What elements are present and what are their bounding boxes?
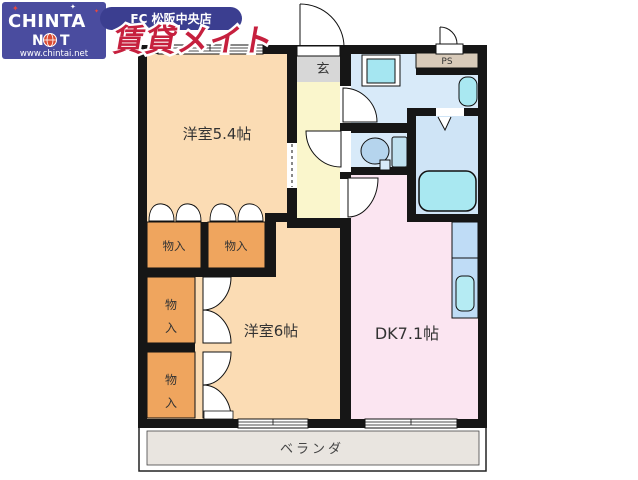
- logo-text-t: T: [60, 33, 70, 49]
- veranda-label: ベランダ: [280, 442, 344, 457]
- pipe-shaft-label: PS: [441, 57, 452, 67]
- logo-text-n: N: [32, 33, 44, 49]
- meter-box-door: [436, 27, 463, 54]
- door-gap: [436, 108, 464, 116]
- toilet-tank: [392, 137, 407, 167]
- room-west-54-label: 洋室5.4帖: [183, 125, 252, 143]
- veranda: ベランダ: [139, 426, 486, 471]
- wall: [265, 213, 276, 270]
- star-icon: ✦: [12, 4, 19, 13]
- star-icon: ✦: [70, 3, 76, 11]
- window-bottom-dk: [365, 419, 457, 428]
- bathtub: [419, 171, 476, 211]
- room-dk-label: DK7.1帖: [375, 324, 439, 343]
- door-swing-arc: [300, 4, 344, 47]
- wall: [201, 222, 208, 268]
- window-bottom-west6: [238, 419, 308, 428]
- floor-plan-canvas: ベランダ: [0, 0, 638, 480]
- globe-icon: [44, 34, 57, 47]
- wall: [138, 45, 147, 428]
- wall: [340, 54, 351, 86]
- floor-plan-page: ベランダ: [0, 0, 638, 480]
- logo-url: www.chintai.net: [20, 49, 89, 59]
- storage-c-char-top: 物: [165, 298, 177, 312]
- wall: [340, 218, 351, 428]
- entrance-door-sill: [297, 46, 340, 56]
- room54-opening: [287, 143, 297, 188]
- wall: [407, 214, 478, 222]
- kitchen-sink: [456, 276, 474, 311]
- door-swing-arc: [440, 27, 457, 44]
- storage-a-label: 物入: [163, 239, 186, 253]
- room-west-6-label: 洋室6帖: [244, 322, 299, 340]
- wall: [416, 68, 478, 75]
- kitchen-counter: [452, 222, 478, 318]
- brand-name-text: 賃貸メイト: [110, 23, 277, 59]
- storage-c-char-bottom: 入: [165, 321, 177, 335]
- wall: [478, 45, 487, 428]
- wall: [287, 54, 297, 222]
- wall: [407, 108, 416, 222]
- star-icon: ✦: [94, 8, 99, 15]
- brand-name: 賃貸メイト: [110, 23, 277, 59]
- toilet-base: [380, 160, 390, 170]
- storage-d-char-top: 物: [165, 373, 177, 387]
- storage-b-label: 物入: [225, 239, 248, 253]
- entrance-label: 玄: [316, 62, 329, 77]
- wall: [340, 167, 416, 175]
- wall: [147, 343, 195, 352]
- door-gap: [340, 131, 351, 172]
- vanity-basin: [459, 77, 477, 106]
- entrance-door: [297, 4, 344, 56]
- washing-machine: [367, 59, 395, 83]
- meter-door-sill: [436, 44, 463, 54]
- wall: [147, 268, 276, 277]
- brand-header: CHINTA ✦ ✦ ✦ N T www.chintai.net FC 松阪中央…: [2, 2, 277, 59]
- door-sill: [204, 411, 233, 419]
- storage-d-char-bottom: 入: [165, 396, 177, 410]
- logo-text-chinta: CHINTA: [8, 11, 86, 32]
